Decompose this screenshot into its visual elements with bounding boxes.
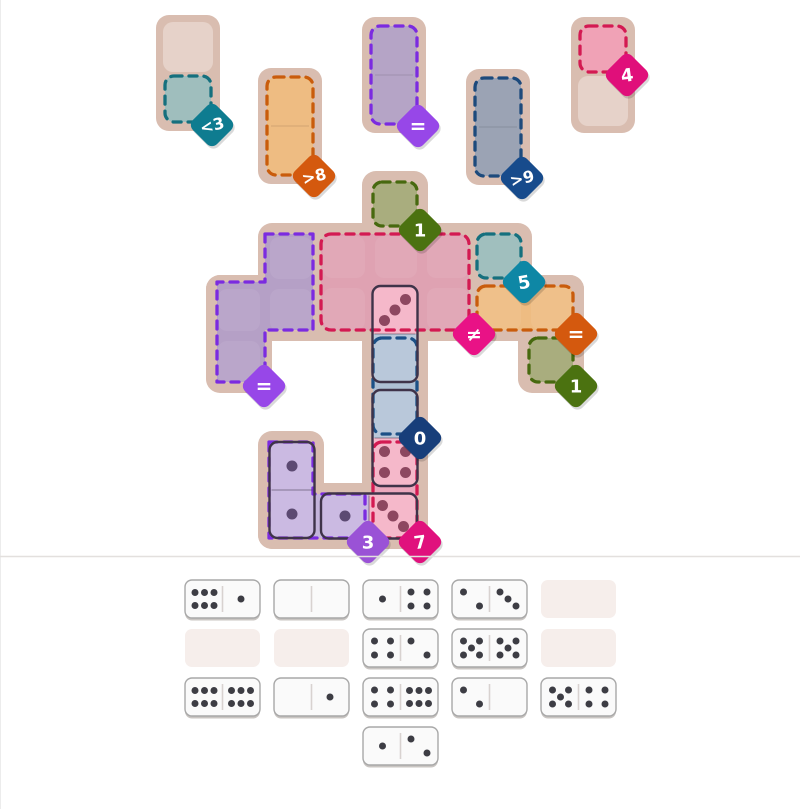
- pip: [400, 467, 411, 478]
- tray-domino-6-6[interactable]: [185, 678, 260, 719]
- badge-label: 1: [414, 221, 427, 242]
- pip: [476, 701, 483, 708]
- pip: [602, 701, 609, 708]
- pip: [424, 589, 431, 596]
- pip: [379, 596, 386, 603]
- tray-domino-2-3[interactable]: [452, 580, 527, 621]
- tray-domino-4-6[interactable]: [363, 678, 438, 719]
- pip: [460, 638, 467, 645]
- pip: [424, 603, 431, 610]
- pip: [505, 596, 512, 603]
- pip: [408, 603, 415, 610]
- badge-label: =: [568, 322, 585, 346]
- pip: [247, 687, 254, 694]
- pip: [476, 652, 483, 659]
- tray-half-pips: [379, 743, 386, 750]
- pip: [201, 602, 208, 609]
- pip: [586, 687, 593, 694]
- pip: [371, 652, 378, 659]
- badge-label: =: [256, 374, 273, 398]
- pip: [379, 743, 386, 750]
- domino-half-bottom: [373, 334, 418, 382]
- pip: [228, 700, 235, 707]
- pip: [327, 694, 334, 701]
- pip: [211, 687, 218, 694]
- pip: [406, 687, 413, 694]
- tray-domino-0-1[interactable]: [274, 678, 349, 719]
- tray-domino-5-5[interactable]: [452, 629, 527, 670]
- pip: [513, 638, 520, 645]
- tray-domino-0-0[interactable]: [274, 580, 349, 621]
- pip: [379, 467, 390, 478]
- pip: [425, 687, 432, 694]
- pip: [228, 687, 235, 694]
- pip: [557, 694, 564, 701]
- badge-label: ≠: [466, 324, 482, 346]
- pip: [192, 700, 199, 707]
- pip: [211, 589, 218, 596]
- tray-domino-5-4[interactable]: [541, 678, 616, 719]
- tray-empty-slot: [185, 629, 260, 667]
- badge-label: 0: [414, 429, 427, 450]
- pip: [468, 645, 475, 652]
- tray-domino-1-4[interactable]: [363, 580, 438, 621]
- pip: [460, 687, 467, 694]
- pip: [379, 315, 390, 326]
- domino-puzzle-game: <3 >8 = >9 4 1 5 ≠ =: [0, 0, 800, 809]
- pip: [379, 446, 390, 457]
- tray-domino-2-0[interactable]: [452, 678, 527, 719]
- pip: [371, 687, 378, 694]
- pip: [505, 645, 512, 652]
- pip: [238, 700, 245, 707]
- pip: [513, 652, 520, 659]
- pip: [497, 589, 504, 596]
- pip: [387, 701, 394, 708]
- pip: [408, 638, 415, 645]
- pip: [602, 687, 609, 694]
- pip: [390, 305, 401, 316]
- tray-domino-1-2[interactable]: [363, 727, 438, 768]
- pip: [406, 700, 413, 707]
- pip: [287, 509, 298, 520]
- pip: [192, 589, 199, 596]
- pip: [192, 602, 199, 609]
- pip: [398, 521, 409, 532]
- pip: [497, 652, 504, 659]
- pip: [416, 700, 423, 707]
- pip: [565, 701, 572, 708]
- tray-empty-slot: [541, 629, 616, 667]
- pip: [424, 652, 431, 659]
- pip: [388, 511, 399, 522]
- pip: [238, 687, 245, 694]
- tray-domino-6-1[interactable]: [185, 580, 260, 621]
- pip: [192, 687, 199, 694]
- pip: [425, 700, 432, 707]
- pip: [340, 511, 351, 522]
- pip: [497, 638, 504, 645]
- tray-empty-slot: [274, 629, 349, 667]
- badge-label: =: [410, 114, 427, 138]
- pip: [476, 638, 483, 645]
- pip: [424, 750, 431, 757]
- pip: [513, 603, 520, 610]
- pip: [201, 700, 208, 707]
- domino-pips: [287, 509, 298, 520]
- pip: [201, 589, 208, 596]
- pip: [586, 701, 593, 708]
- pip: [416, 687, 423, 694]
- tray-half-pips: [238, 596, 245, 603]
- domino-pips: [287, 461, 298, 472]
- pip: [460, 652, 467, 659]
- pip: [247, 700, 254, 707]
- pip: [549, 701, 556, 708]
- main-board: [206, 171, 584, 549]
- pip: [565, 687, 572, 694]
- pip: [377, 500, 388, 511]
- pip: [371, 638, 378, 645]
- pip: [549, 687, 556, 694]
- badge-label: 3: [362, 533, 375, 554]
- tray-empty-slot: [541, 580, 616, 618]
- pip: [371, 701, 378, 708]
- pip: [287, 461, 298, 472]
- pip: [211, 602, 218, 609]
- tray-domino-4-2[interactable]: [363, 629, 438, 670]
- pip: [460, 589, 467, 596]
- pip: [476, 603, 483, 610]
- tray-half-pips: [327, 694, 334, 701]
- pip: [408, 736, 415, 743]
- pip: [408, 589, 415, 596]
- pip: [238, 596, 245, 603]
- empty-cell[interactable]: [163, 22, 213, 72]
- domino-pips: [340, 511, 351, 522]
- tray-half-pips: [379, 596, 386, 603]
- pip: [387, 687, 394, 694]
- pip: [387, 652, 394, 659]
- pip: [201, 687, 208, 694]
- pip: [211, 700, 218, 707]
- domino-tray: [185, 580, 616, 768]
- pip: [387, 638, 394, 645]
- pip: [400, 294, 411, 305]
- badge-label: 1: [570, 377, 583, 398]
